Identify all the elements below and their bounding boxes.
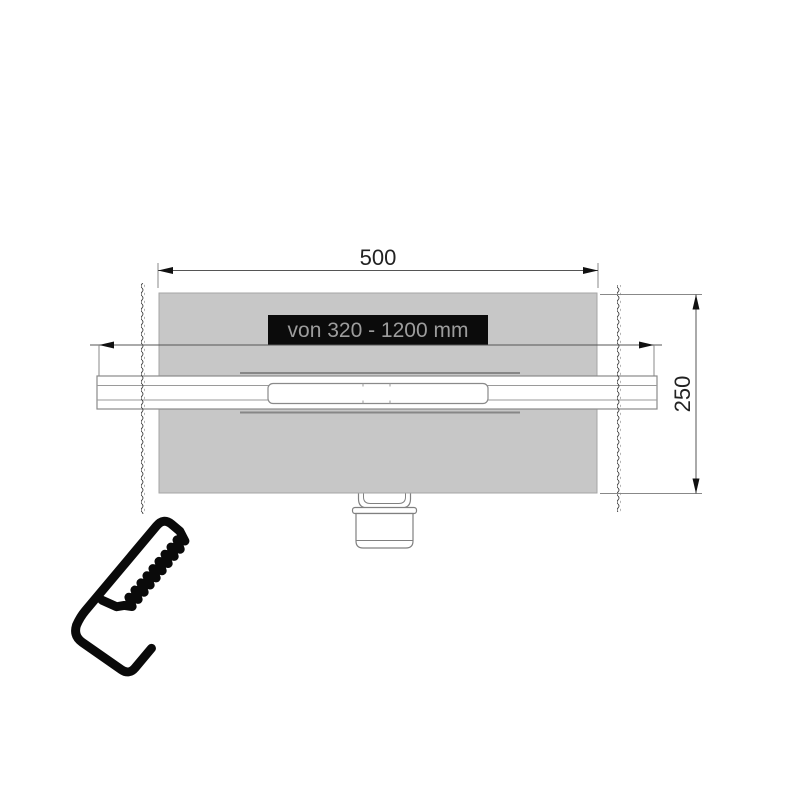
outlet-flange-outer	[359, 494, 411, 509]
drawing-svg: von 320 - 1200 mm 500 250	[0, 0, 800, 800]
length-range-text: von 320 - 1200 mm	[288, 319, 469, 342]
arrow-left-icon	[99, 342, 114, 349]
arrow-right-icon	[639, 342, 654, 349]
break-line-right	[617, 285, 621, 512]
break-line-left	[141, 283, 145, 514]
arrow-down-icon	[693, 479, 700, 494]
length-range-label: von 320 - 1200 mm	[268, 315, 488, 345]
arrow-up-icon	[693, 295, 700, 310]
outlet-collar	[353, 508, 417, 514]
outlet-pipe	[356, 514, 413, 549]
dimension-250-text: 250	[670, 376, 695, 413]
hand-saw-icon	[68, 518, 220, 679]
drain-outlet	[353, 494, 417, 549]
dimension-500: 500	[158, 245, 598, 288]
dimension-500-text: 500	[360, 245, 397, 270]
arrow-left-icon	[158, 267, 173, 274]
arrow-right-icon	[583, 267, 598, 274]
drain-grate	[268, 384, 488, 404]
technical-drawing-canvas: von 320 - 1200 mm 500 250	[0, 0, 800, 800]
